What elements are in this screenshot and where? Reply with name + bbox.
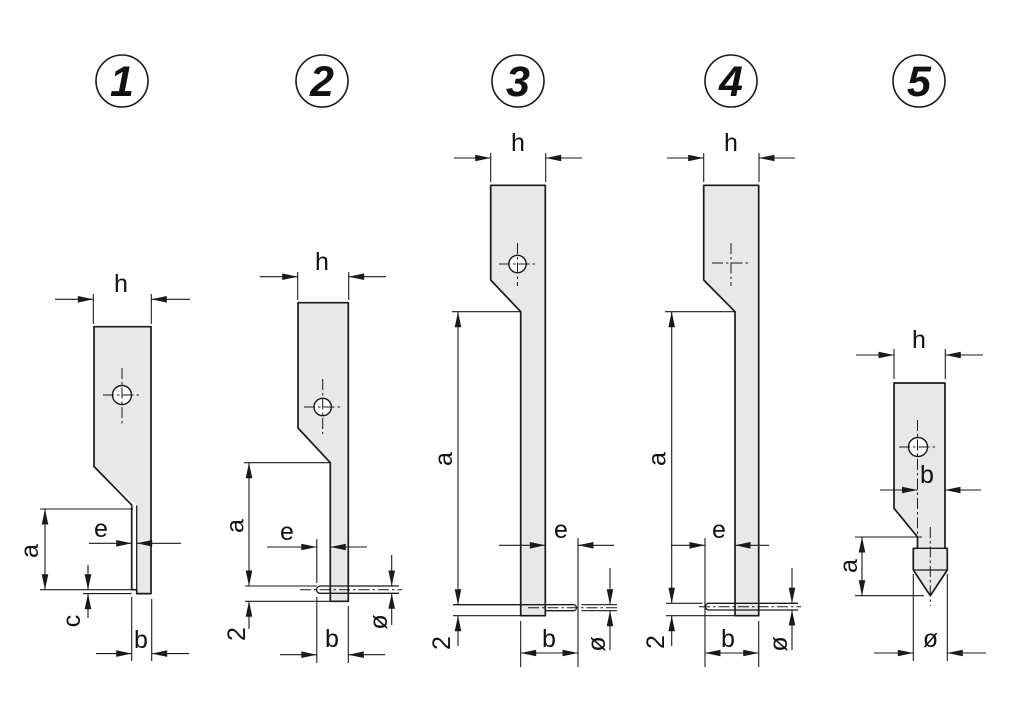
fig1-dim-h-label: h	[114, 270, 128, 298]
fig1-dim-c-label: c	[58, 615, 86, 628]
fig4-dim-e-label: e	[712, 516, 726, 544]
figure-4: 4 h a 2 e	[642, 55, 801, 667]
figure-4-number: 4	[718, 58, 743, 106]
fig5-dim-diameter-label: ø	[923, 625, 938, 653]
figure-2-number: 2	[309, 58, 334, 106]
figure-5-number: 5	[907, 58, 932, 106]
fig4-dim-h-label: h	[724, 129, 738, 157]
fig2-dimension-h	[260, 272, 386, 300]
knife-variants-diagram: 1 h a e c	[0, 0, 1022, 714]
fig2-dim-diameter-label: ø	[365, 614, 393, 629]
figure-3-number: 3	[506, 58, 530, 106]
fig1-dim-e-label: e	[94, 515, 108, 543]
fig3-dimension-h	[454, 153, 582, 182]
fig4-dimension-h	[667, 153, 795, 182]
figure-5: 5 h b a ø	[835, 55, 986, 661]
fig2-dim-e-label: e	[280, 518, 294, 546]
fig2-dim-b-label: b	[325, 625, 339, 653]
fig3-dimension-a	[452, 312, 521, 605]
fig3-dim-e-label: e	[554, 516, 568, 544]
fig1-dimension-h	[55, 294, 190, 324]
fig2-dim-offset-label: 2	[223, 627, 251, 641]
figure-3: 3 h a 2 e	[428, 55, 620, 667]
figure-2: 2 h a 2 e	[222, 55, 402, 663]
fig3-dim-b-label: b	[542, 625, 556, 653]
fig1-dim-b-label: b	[134, 626, 148, 654]
figure-1: 1 h a e c	[16, 55, 190, 661]
fig4-dim-b-label: b	[721, 625, 735, 653]
fig4-dimension-a	[665, 312, 736, 604]
fig3-dim-offset-label: 2	[428, 636, 456, 650]
fig5-dim-a-label: a	[835, 559, 863, 573]
fig2-dim-a-label: a	[222, 519, 250, 533]
fig5-body	[894, 383, 947, 596]
fig5-dim-b-label: b	[920, 461, 934, 489]
fig3-dim-a-label: a	[430, 452, 458, 466]
fig3-dim-h-label: h	[511, 129, 525, 157]
fig1-body-fill	[94, 327, 151, 594]
fig4-dim-diameter-label: ø	[765, 636, 793, 651]
fig4-dim-offset-label: 2	[642, 635, 670, 649]
figure-1-number: 1	[110, 58, 134, 106]
fig3-dim-diameter-label: ø	[583, 636, 611, 651]
fig2-dim-h-label: h	[315, 248, 329, 276]
fig5-dim-h-label: h	[912, 326, 926, 354]
technical-drawing-page: 1 h a e c	[0, 0, 1022, 714]
fig4-dim-a-label: a	[644, 452, 672, 466]
fig2-body	[298, 303, 348, 602]
fig1-dimension-a	[40, 509, 133, 590]
fig1-dim-a-label: a	[16, 544, 44, 558]
fig1-dimension-c	[83, 565, 132, 618]
